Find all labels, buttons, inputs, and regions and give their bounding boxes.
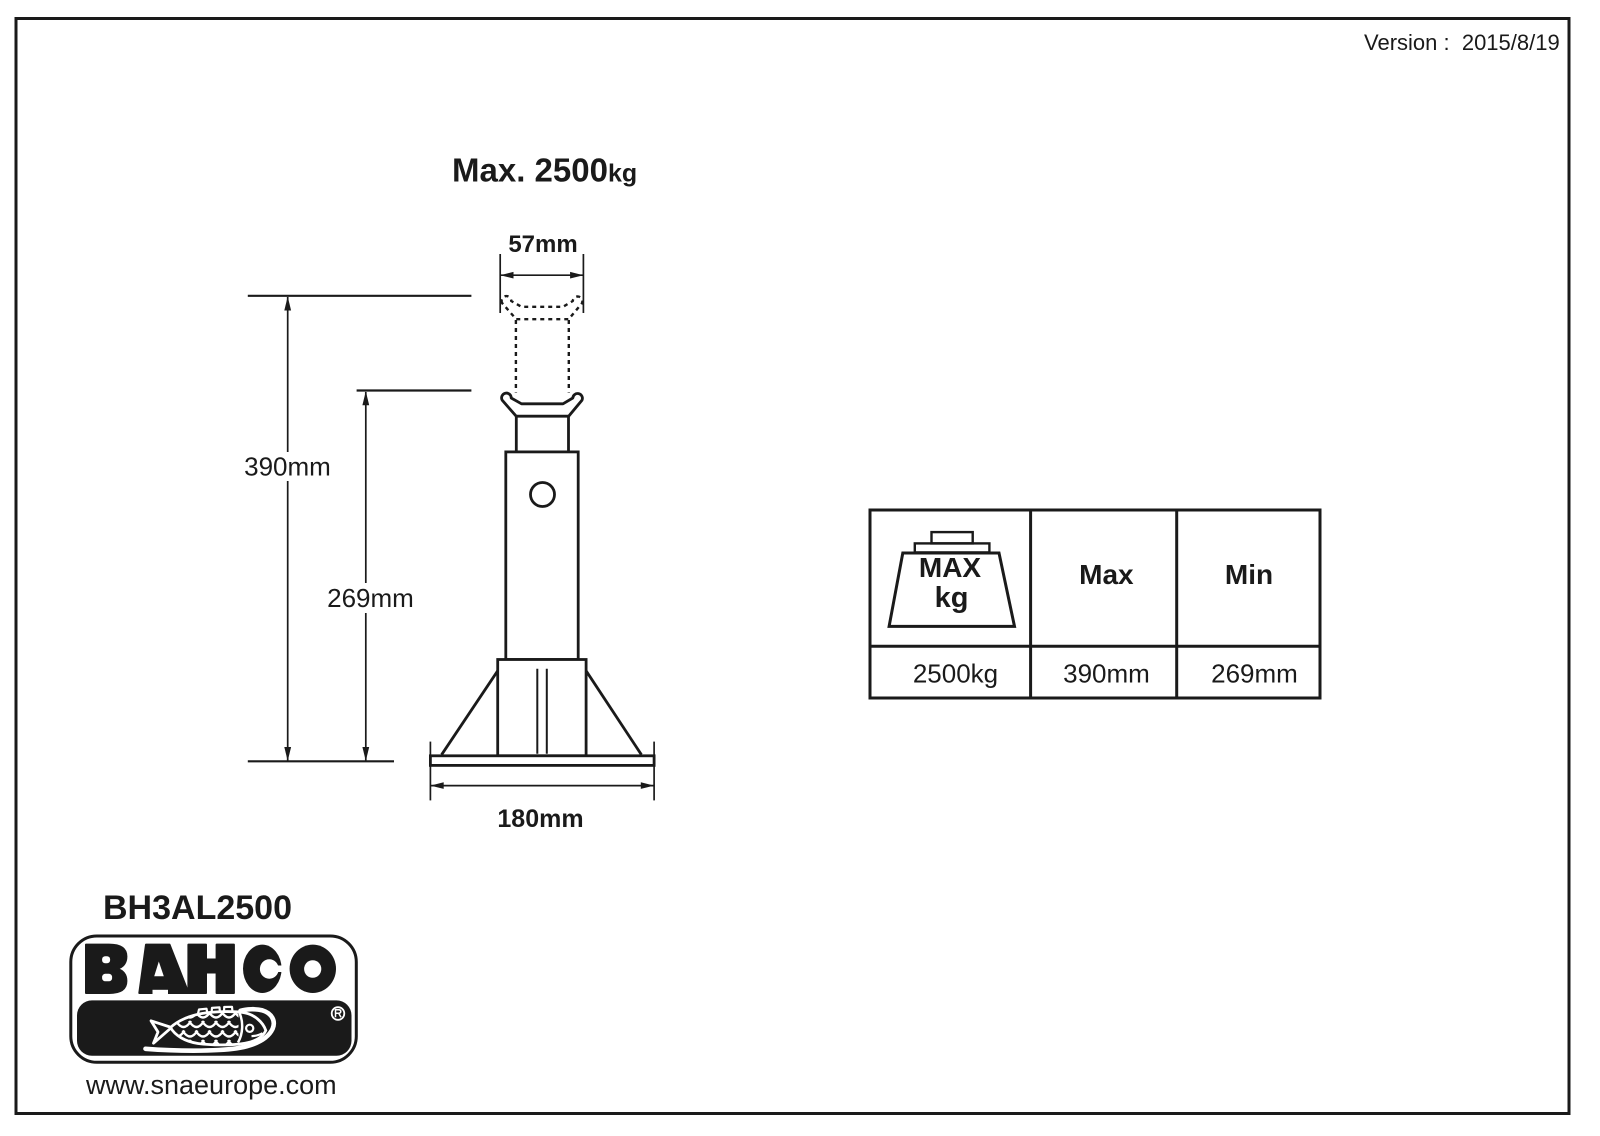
svg-text:57mm: 57mm xyxy=(508,231,577,258)
svg-text:269mm: 269mm xyxy=(1211,659,1298,689)
svg-text:180mm: 180mm xyxy=(497,805,583,833)
svg-text:390mm: 390mm xyxy=(244,452,331,482)
svg-text:Max: Max xyxy=(1079,559,1134,590)
svg-text:269mm: 269mm xyxy=(327,583,414,613)
svg-text:www.snaeurope.com: www.snaeurope.com xyxy=(85,1070,337,1100)
svg-text:MAX: MAX xyxy=(919,552,982,583)
svg-text:390mm: 390mm xyxy=(1063,659,1150,689)
svg-text:BH3AL2500: BH3AL2500 xyxy=(103,889,292,927)
svg-text:kg: kg xyxy=(935,582,969,614)
svg-text:2500kg: 2500kg xyxy=(913,659,998,689)
svg-text:Min: Min xyxy=(1225,559,1273,590)
svg-text:Version : 2015/8/19: Version : 2015/8/19 xyxy=(1364,30,1560,55)
